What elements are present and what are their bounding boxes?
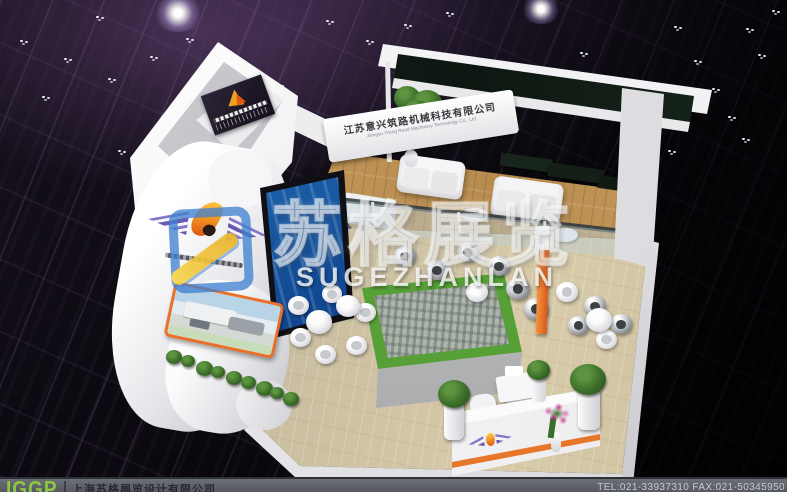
planter-box xyxy=(499,152,552,172)
planter-box xyxy=(547,162,604,184)
sofa-cushion xyxy=(401,166,430,189)
side-cylinder-table xyxy=(404,150,418,167)
watermark-text-cn: 苏格展览 xyxy=(272,200,602,270)
round-table xyxy=(336,295,360,317)
desk-logo-eagle-icon xyxy=(485,432,496,446)
designer-logo: IGGP xyxy=(6,478,58,492)
desk-logo-wing-left-icon xyxy=(467,436,484,449)
plant-bush xyxy=(166,350,182,364)
plant-bush xyxy=(226,371,242,385)
designer-company-name: 上海苏格展览设计有限公司 xyxy=(72,481,216,492)
flower-bouquet xyxy=(540,402,574,428)
cabinet-item xyxy=(505,366,523,376)
watermark-logo-icon xyxy=(168,206,254,294)
topiary-pot xyxy=(532,378,546,402)
exhibition-booth-render: 江苏意兴筑路机械科技有限公司 Jiangsu Yixing Road Machi… xyxy=(0,0,787,492)
footer-bar: IGGP 上海苏格展览设计有限公司 TEL:021-33937310 FAX:0… xyxy=(0,477,787,492)
sofa-cushion xyxy=(430,170,459,193)
footer-contact-info: TEL:021-33937310 FAX:021-50345950 xyxy=(597,482,785,492)
topiary-ball xyxy=(570,364,606,395)
plant-bush xyxy=(283,392,299,406)
footer-divider xyxy=(64,481,66,492)
watermark-logo-swoosh-icon xyxy=(168,230,240,288)
round-table xyxy=(306,310,332,334)
topiary-ball xyxy=(438,380,470,408)
desk-logo-wing-right-icon xyxy=(495,431,512,444)
watermark-text-en: SUGEZHANLAN xyxy=(296,262,558,293)
round-table xyxy=(586,308,612,332)
topiary-ball xyxy=(527,360,550,380)
